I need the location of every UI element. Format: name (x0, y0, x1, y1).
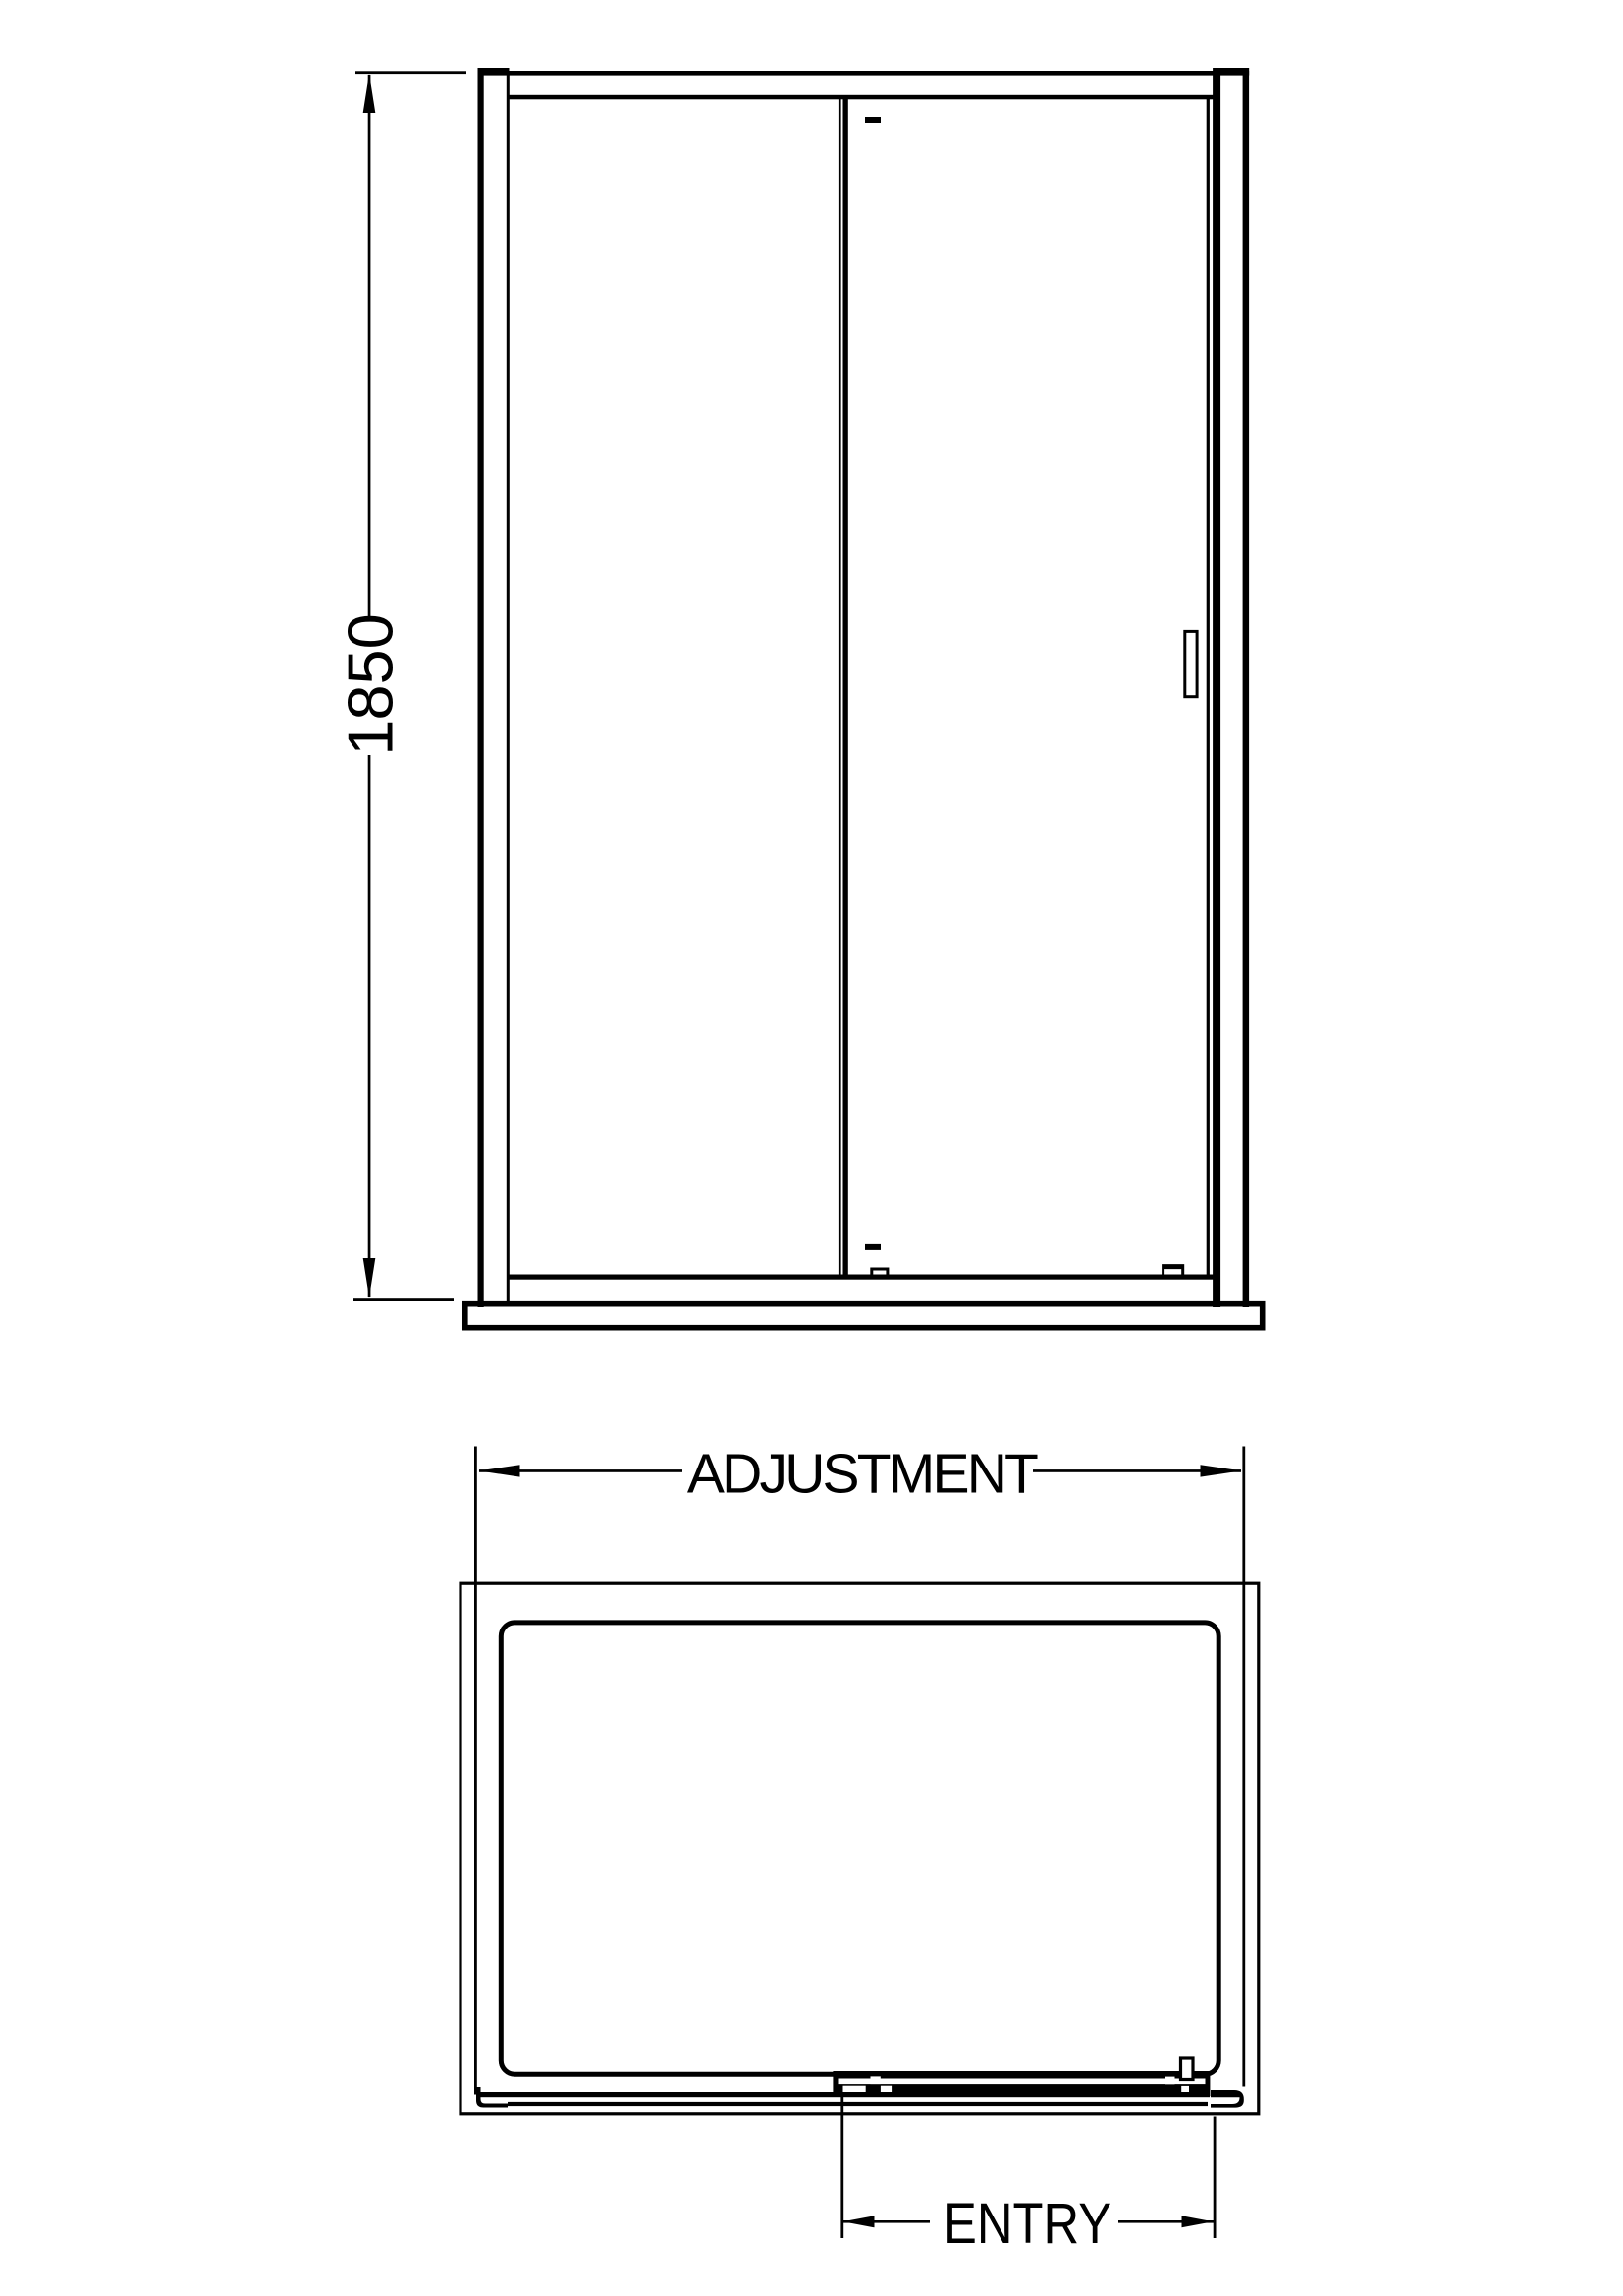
svg-text:ADJUSTMENT: ADJUSTMENT (687, 1443, 1038, 1506)
svg-text:ENTRY: ENTRY (944, 2192, 1111, 2256)
svg-text:1850: 1850 (335, 614, 406, 756)
